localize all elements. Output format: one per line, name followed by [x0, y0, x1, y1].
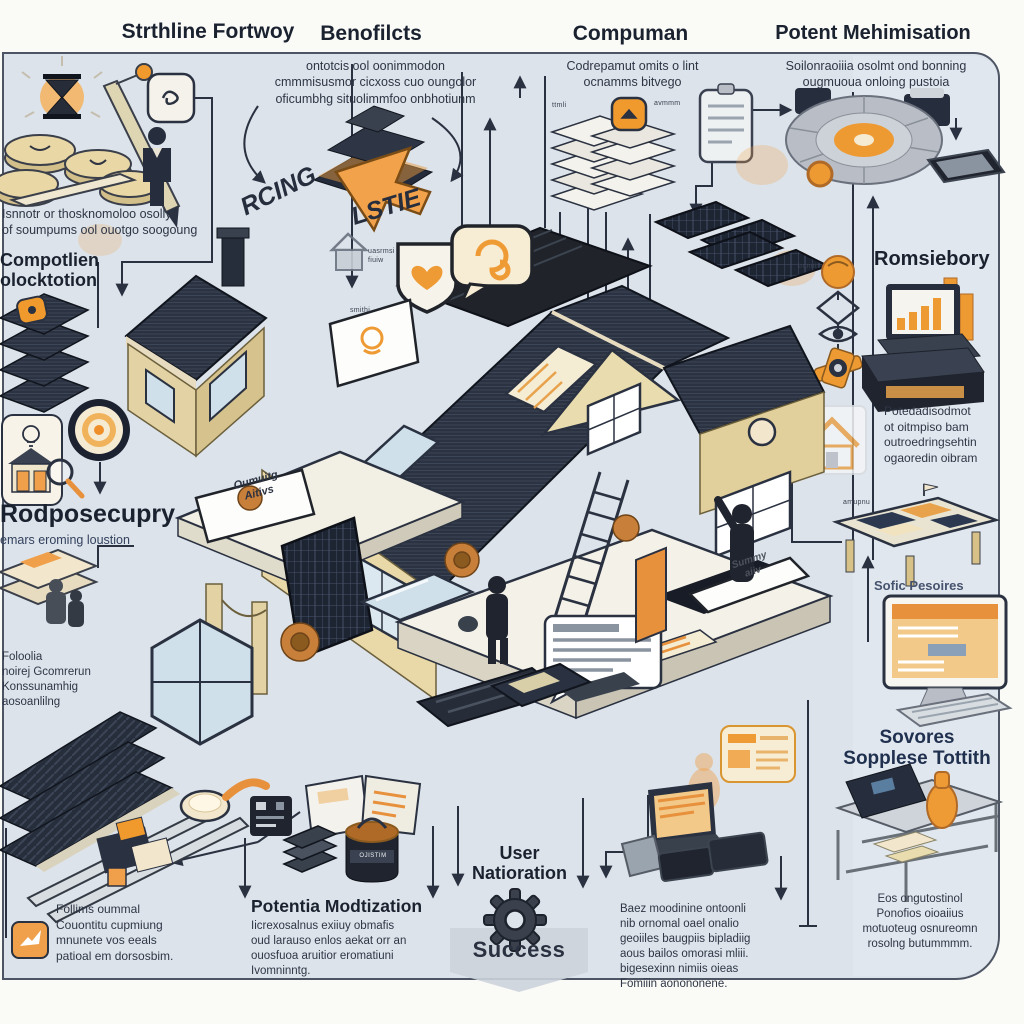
romsiebory-heading: Romsiebory	[874, 248, 1009, 270]
tiny-pyramid-label: uasrmsi fiuiw	[368, 247, 395, 265]
tiny-stack-label: ttmli	[552, 101, 566, 110]
tiny-house-label: smithi	[350, 306, 370, 315]
machine-caption: Eos ongutostinol Ponofios oioaiius motuo…	[836, 892, 1004, 952]
burst-anvil-icon	[22, 56, 102, 119]
paper-stack-illustration	[552, 98, 674, 210]
tiny-right-label: tnomt	[798, 262, 817, 271]
valve-icon	[813, 347, 863, 389]
mini-house-icon	[332, 234, 366, 270]
qr-patch-icon	[250, 796, 292, 836]
right-flow-icons	[813, 256, 863, 389]
romsiebory-caption: Potedadisodmot ot oitmpiso bam outroedri…	[884, 404, 1014, 466]
target-icon	[68, 399, 130, 461]
user-navigation-label: User Natioration	[452, 843, 587, 883]
rodpose-caption: emars eroming loustion	[0, 532, 180, 548]
sovores-heading: Sovores Sopplese Tottith	[834, 727, 1000, 770]
compman-caption: Codrepamut omits o lint ocnamms bitvego	[545, 58, 720, 91]
rodpose-heading: Rodposecupry	[0, 500, 210, 528]
canister-icon	[346, 819, 398, 882]
folded-slab-icon	[0, 550, 96, 627]
compman-heading: Compuman	[548, 22, 713, 46]
potentia-heading: Potentia Modtization	[251, 897, 466, 917]
location-pin-icon	[16, 295, 48, 324]
canister-label: OJISTIM	[347, 853, 399, 861]
robot-disc-illustration	[786, 88, 1004, 186]
benefits-heading: Benofilcts	[286, 22, 456, 46]
soft-resources-label: Sofic Pesoires	[874, 578, 1014, 595]
tiny-table-label: amupnu	[843, 498, 870, 507]
eye-icon	[820, 327, 856, 341]
potent-caption: Soilonraoiiia osolmt ond bonning ougmuou…	[756, 58, 996, 91]
tiny-clip-label: avmmm	[654, 99, 680, 108]
ghost-hand-icon	[736, 145, 788, 185]
bay-window	[152, 620, 252, 744]
orange-ball-icon	[822, 256, 854, 288]
shingle-stack-icon	[0, 294, 88, 412]
notification-card	[721, 726, 795, 782]
potent-heading: Potent Mehimisation	[748, 22, 998, 44]
potentia-caption: Iicrexosalnus exiiuy obmafis oud larauso…	[251, 919, 451, 979]
left-mid-caption: Foloolia noirej Gcomrerun Konssunamhig a…	[2, 650, 122, 710]
location-pin-icon	[612, 98, 646, 130]
tablet-icon	[928, 150, 1004, 182]
bottom-right-caption: Baez moodinine ontoonli nib ornomal oael…	[620, 902, 815, 992]
roof-signboard	[330, 300, 418, 386]
laptop-chart-illustration	[862, 278, 984, 412]
streamline-caption: Isnnotr or thosknomoloo osolly of soumpu…	[2, 206, 217, 239]
composition-label: Compotlien olocktotion	[0, 250, 110, 290]
solar-panel-array-icon	[656, 202, 828, 286]
scribble-card-icon	[148, 74, 194, 122]
orange-door	[636, 548, 666, 642]
machine-illustration	[838, 764, 1000, 902]
bottom-left-caption: Follims oummal Couontitu cupmiung mnunet…	[56, 902, 211, 964]
bird-badge-icon	[12, 922, 48, 958]
coin-icon	[808, 162, 832, 186]
benefits-caption: ontotcis ool oonimmodon cmmmisusmor cicx…	[268, 58, 483, 107]
success-label: Success	[450, 938, 588, 963]
printer-icon	[862, 348, 984, 412]
desktop-monitor-illustration	[884, 596, 1010, 726]
clipboard-icon	[700, 84, 752, 162]
